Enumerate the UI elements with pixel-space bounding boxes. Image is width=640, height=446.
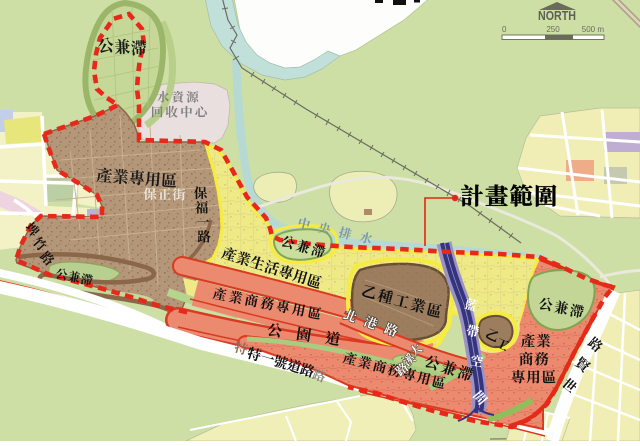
svg-text:0: 0 <box>502 25 507 34</box>
svg-text:NORTH: NORTH <box>538 9 576 23</box>
svg-text:250: 250 <box>546 25 560 34</box>
svg-text:500 m: 500 m <box>582 25 605 34</box>
